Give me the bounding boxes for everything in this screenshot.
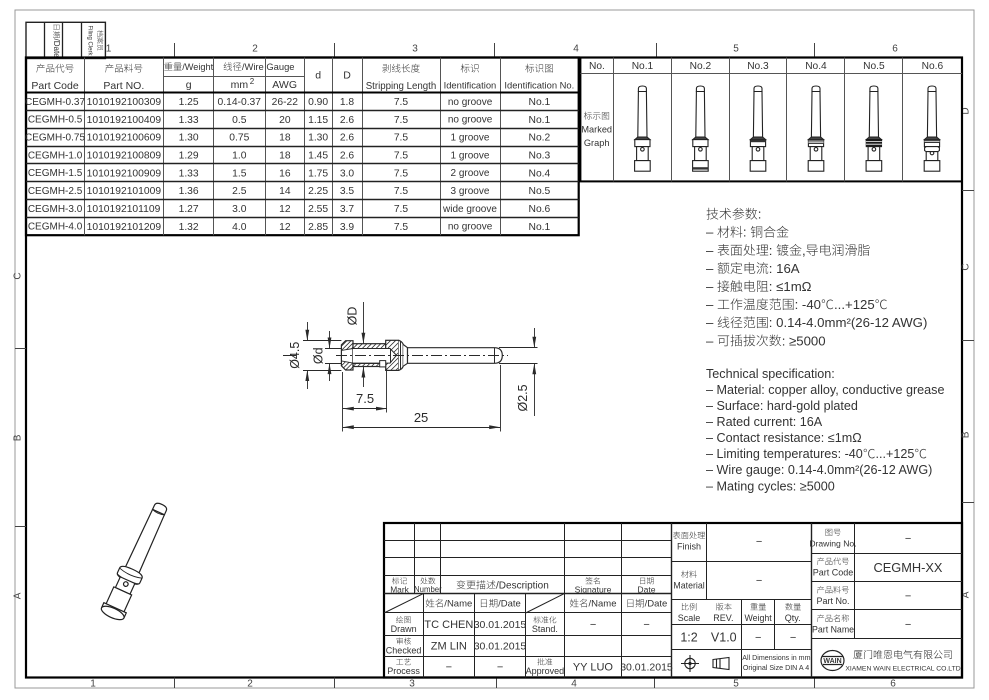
svg-text:/Date: /Date <box>498 599 521 610</box>
svg-text:CEGMH-XX: CEGMH-XX <box>874 560 943 575</box>
svg-text:3.5: 3.5 <box>340 186 355 197</box>
svg-text:/Weight: /Weight <box>182 62 213 72</box>
svg-text:/Description: /Description <box>496 581 549 592</box>
svg-text:4: 4 <box>571 679 577 690</box>
svg-text:No.3: No.3 <box>529 151 551 162</box>
svg-text:1.27: 1.27 <box>179 204 199 215</box>
svg-text:No.1: No.1 <box>529 115 551 126</box>
svg-text:3.0: 3.0 <box>232 204 247 215</box>
svg-text:No.1: No.1 <box>529 222 551 233</box>
svg-text:2: 2 <box>250 77 255 86</box>
svg-text:1.75: 1.75 <box>308 168 328 179</box>
svg-text:Ø4.5: Ø4.5 <box>288 342 302 369</box>
svg-text:2.6: 2.6 <box>340 133 355 144</box>
svg-text:7.5: 7.5 <box>394 133 409 144</box>
svg-text:no groove: no groove <box>448 222 493 233</box>
svg-text:18: 18 <box>279 133 291 144</box>
svg-text:–: – <box>706 225 714 240</box>
svg-text:7.5: 7.5 <box>394 151 409 162</box>
svg-text:1.5: 1.5 <box>232 168 247 179</box>
svg-text:V1.0: V1.0 <box>711 631 737 645</box>
svg-text:–: – <box>706 315 714 330</box>
svg-text:12: 12 <box>279 204 291 215</box>
svg-text:no groove: no groove <box>448 97 493 108</box>
svg-text:1.15: 1.15 <box>308 115 328 126</box>
svg-text:20: 20 <box>279 115 291 126</box>
svg-text:– Wire gauge: 0.14-4.0mm²(26-1: – Wire gauge: 0.14-4.0mm²(26-12 AWG) <box>706 463 932 477</box>
svg-text:1.33: 1.33 <box>179 115 199 126</box>
svg-text:–: – <box>706 333 714 348</box>
svg-text:3: 3 <box>409 679 415 690</box>
svg-text:TC CHEN: TC CHEN <box>424 619 473 631</box>
svg-text:Material: Material <box>673 581 704 591</box>
svg-text:No.2: No.2 <box>529 133 551 144</box>
svg-text:1.30: 1.30 <box>308 133 328 144</box>
svg-text:CEGMH-0.5: CEGMH-0.5 <box>28 115 83 126</box>
svg-text:Part Code: Part Code <box>813 568 854 578</box>
svg-text:No.2: No.2 <box>690 61 712 72</box>
svg-text:6: 6 <box>892 44 898 55</box>
svg-text:1.8: 1.8 <box>340 97 355 108</box>
svg-text:: ≤1mΩ: : ≤1mΩ <box>769 279 812 294</box>
svg-text:No.1: No.1 <box>632 61 654 72</box>
svg-text:7.5: 7.5 <box>394 97 409 108</box>
svg-text:– Rated current: 16A: – Rated current: 16A <box>706 415 823 429</box>
svg-text:7.5: 7.5 <box>394 168 409 179</box>
svg-text:Finish: Finish <box>677 542 701 552</box>
svg-text:CEGMH-0.75: CEGMH-0.75 <box>25 133 85 144</box>
svg-text:2.5: 2.5 <box>232 186 247 197</box>
svg-text:2: 2 <box>247 679 253 690</box>
svg-text:Filing Clerk: Filing Clerk <box>87 26 93 57</box>
svg-text:–: – <box>706 279 714 294</box>
svg-text:: 16A: : 16A <box>769 261 800 276</box>
svg-text:30.01.2015: 30.01.2015 <box>620 661 673 673</box>
svg-text:4.0: 4.0 <box>232 222 247 233</box>
svg-text:No.6: No.6 <box>529 204 551 215</box>
svg-text:Qty.: Qty. <box>785 613 801 623</box>
svg-text:−: − <box>905 619 911 631</box>
svg-text:– Mating cycles: ≥5000: – Mating cycles: ≥5000 <box>706 479 835 493</box>
svg-text:30.01.2015: 30.01.2015 <box>474 619 527 631</box>
svg-text:1010192101109: 1010192101109 <box>87 204 161 215</box>
svg-text:WAIN: WAIN <box>823 658 841 665</box>
svg-text:B: B <box>961 431 972 438</box>
svg-text:CEGMH-1.0: CEGMH-1.0 <box>28 150 83 161</box>
svg-text:1:2: 1:2 <box>680 631 697 645</box>
svg-text:1010192100809: 1010192100809 <box>87 151 162 162</box>
svg-text:7.5: 7.5 <box>356 391 374 406</box>
svg-text:1.32: 1.32 <box>179 222 199 233</box>
svg-text:No.6: No.6 <box>922 61 944 72</box>
svg-text:Process: Process <box>387 666 420 676</box>
svg-text:1.36: 1.36 <box>179 186 199 197</box>
svg-text:Marked: Marked <box>581 125 612 135</box>
svg-text:1 groove: 1 groove <box>451 150 490 161</box>
svg-text:3 groove: 3 groove <box>451 186 490 197</box>
svg-text:−: − <box>755 632 761 644</box>
svg-text:/Name: /Name <box>589 599 617 610</box>
svg-text:Number: Number <box>414 585 442 594</box>
svg-text:–: – <box>706 261 714 276</box>
svg-text:Mark: Mark <box>390 584 409 594</box>
svg-text:g: g <box>186 79 192 91</box>
svg-text:−: − <box>756 575 762 587</box>
svg-text:– Limiting temperatures: -40: – Limiting temperatures: -40 <box>706 447 863 461</box>
svg-text:YY LUO: YY LUO <box>573 662 614 674</box>
svg-text:/Name: /Name <box>444 599 472 610</box>
svg-text:3.9: 3.9 <box>340 222 355 233</box>
svg-text:1: 1 <box>106 44 112 55</box>
svg-text:XIAMEN WAIN ELECTRICAL CO.LTD: XIAMEN WAIN ELECTRICAL CO.LTD <box>845 665 960 672</box>
svg-text:Date: Date <box>637 585 655 595</box>
svg-text:0.14-0.37: 0.14-0.37 <box>218 97 262 108</box>
svg-text:1.30: 1.30 <box>179 133 199 144</box>
svg-text:−: − <box>756 536 762 548</box>
svg-text:1010192100909: 1010192100909 <box>87 168 162 179</box>
svg-text:A: A <box>13 592 24 599</box>
svg-text:,: , <box>802 243 806 258</box>
svg-text:All Dimensions in mm: All Dimensions in mm <box>742 654 810 662</box>
svg-text:–: – <box>706 243 714 258</box>
svg-text:1010192100309: 1010192100309 <box>87 97 162 108</box>
svg-text:Drawing No.: Drawing No. <box>809 539 856 549</box>
svg-text:No.4: No.4 <box>805 61 827 72</box>
svg-text:d: d <box>315 70 321 82</box>
svg-text:Part No.: Part No. <box>817 596 850 606</box>
svg-text:1.29: 1.29 <box>179 151 199 162</box>
svg-text:CEGMH-3.0: CEGMH-3.0 <box>28 204 83 215</box>
svg-text:4: 4 <box>573 44 579 55</box>
svg-text:mm: mm <box>231 79 249 91</box>
svg-text:−: − <box>905 533 911 545</box>
svg-text:18: 18 <box>279 151 291 162</box>
svg-text:1.25: 1.25 <box>179 97 199 108</box>
svg-text::: : <box>769 243 773 258</box>
svg-text:1010192101009: 1010192101009 <box>87 186 162 197</box>
svg-text:No.1: No.1 <box>529 97 551 108</box>
svg-text:2.55: 2.55 <box>308 204 328 215</box>
svg-text:– Contact resistance: ≤1mΩ: – Contact resistance: ≤1mΩ <box>706 431 862 445</box>
svg-text:C: C <box>13 272 24 279</box>
svg-text:: -40: : -40 <box>795 297 821 312</box>
svg-text:CEGMH-1.5: CEGMH-1.5 <box>28 168 83 179</box>
svg-text:No.4: No.4 <box>529 168 551 179</box>
svg-text:16: 16 <box>279 168 291 179</box>
svg-text:0.90: 0.90 <box>308 97 328 108</box>
svg-text:Scale: Scale <box>678 613 701 623</box>
svg-text:0.5: 0.5 <box>232 115 247 126</box>
svg-text:−: − <box>446 662 452 674</box>
svg-text:No.5: No.5 <box>529 186 551 197</box>
svg-text:Identification: Identification <box>444 80 497 91</box>
svg-text:1.45: 1.45 <box>308 151 328 162</box>
svg-text:Weight: Weight <box>745 613 773 623</box>
svg-text:5: 5 <box>733 679 739 690</box>
svg-text:1010192101209: 1010192101209 <box>87 222 162 233</box>
svg-text:/Date: /Date <box>52 39 61 59</box>
svg-text:D: D <box>343 70 351 82</box>
svg-text:REV.: REV. <box>713 613 733 623</box>
svg-text:wide groove: wide groove <box>442 204 497 215</box>
svg-text:ZM LIN: ZM LIN <box>431 641 467 653</box>
svg-text:– Material: copper alloy, cond: – Material: copper alloy, conductive gre… <box>706 383 944 397</box>
svg-text:−: − <box>643 619 649 631</box>
svg-text:Signature: Signature <box>575 585 612 595</box>
svg-text:7.5: 7.5 <box>394 204 409 215</box>
svg-text:...+125: ...+125 <box>876 447 915 461</box>
svg-text:CEGMH-0.37: CEGMH-0.37 <box>25 97 85 108</box>
svg-text:1.33: 1.33 <box>179 168 199 179</box>
svg-text:−: − <box>590 619 596 631</box>
svg-text:12: 12 <box>279 222 291 233</box>
svg-text:1 groove: 1 groove <box>451 133 490 144</box>
svg-text:C: C <box>961 263 972 270</box>
svg-text:2.6: 2.6 <box>340 115 355 126</box>
svg-text:Part Code: Part Code <box>31 80 78 92</box>
svg-text:: 0.14-4.0mm²(26-12 AWG): : 0.14-4.0mm²(26-12 AWG) <box>769 315 928 330</box>
svg-text:No.5: No.5 <box>863 61 885 72</box>
svg-text:Original Size DIN A 4: Original Size DIN A 4 <box>743 664 809 672</box>
svg-text:5: 5 <box>733 44 739 55</box>
svg-text:Checked: Checked <box>386 645 422 655</box>
svg-text:ØD: ØD <box>346 307 360 326</box>
svg-text:1.0: 1.0 <box>232 151 247 162</box>
svg-text:3: 3 <box>412 44 418 55</box>
svg-text:Approved: Approved <box>526 666 565 676</box>
svg-text:1010192100609: 1010192100609 <box>87 133 162 144</box>
svg-text:1010192100409: 1010192100409 <box>87 115 162 126</box>
svg-text:B: B <box>13 434 24 441</box>
svg-text:3.7: 3.7 <box>340 204 355 215</box>
svg-text:−: − <box>497 662 503 674</box>
svg-text:6: 6 <box>890 679 896 690</box>
svg-text:2.6: 2.6 <box>340 151 355 162</box>
svg-text:Identification No.: Identification No. <box>504 80 574 91</box>
svg-text:Stand.: Stand. <box>532 624 558 634</box>
svg-text:2.25: 2.25 <box>308 186 328 197</box>
svg-text:Ød: Ød <box>312 347 326 364</box>
svg-text:/Wire Gauge: /Wire Gauge <box>242 61 295 72</box>
svg-text::: : <box>743 225 747 240</box>
svg-text:1: 1 <box>90 679 96 690</box>
svg-text:Stripping Length: Stripping Length <box>366 81 437 92</box>
svg-text:Technical specification:: Technical specification: <box>706 367 835 381</box>
svg-text:2 groove: 2 groove <box>451 168 490 179</box>
svg-text:7.5: 7.5 <box>394 186 409 197</box>
svg-text:AWG: AWG <box>272 79 297 91</box>
svg-text:...+125: ...+125 <box>834 297 875 312</box>
svg-text:CEGMH-4.0: CEGMH-4.0 <box>28 222 83 233</box>
svg-text:−: − <box>790 632 796 644</box>
svg-text:No.: No. <box>589 61 605 72</box>
svg-text::: : <box>758 207 762 222</box>
svg-text:–: – <box>706 297 714 312</box>
svg-text:– Surface: hard-gold plated: – Surface: hard-gold plated <box>706 399 858 413</box>
svg-text:Graph: Graph <box>584 138 610 148</box>
svg-text:Part NO.: Part NO. <box>103 80 144 92</box>
svg-text:−: − <box>905 590 911 602</box>
svg-text:: ≥5000: : ≥5000 <box>782 333 826 348</box>
svg-text:26-22: 26-22 <box>272 97 299 108</box>
svg-text:25: 25 <box>414 410 428 425</box>
svg-text:no groove: no groove <box>448 115 493 126</box>
svg-text:Part Name: Part Name <box>812 625 854 635</box>
svg-text:14: 14 <box>279 186 291 197</box>
svg-text:Drawn: Drawn <box>391 624 417 634</box>
svg-text:Ø2.5: Ø2.5 <box>516 384 530 411</box>
svg-text:/Date: /Date <box>645 599 668 610</box>
svg-text:3.0: 3.0 <box>340 168 355 179</box>
svg-text:2: 2 <box>252 44 258 55</box>
svg-text:7.5: 7.5 <box>394 222 409 233</box>
svg-text:CEGMH-2.5: CEGMH-2.5 <box>28 186 83 197</box>
svg-text:No.3: No.3 <box>747 61 769 72</box>
svg-text:30.01.2015: 30.01.2015 <box>474 640 527 652</box>
svg-text:2.85: 2.85 <box>308 222 328 233</box>
svg-text:7.5: 7.5 <box>394 115 409 126</box>
svg-text:0.75: 0.75 <box>229 133 249 144</box>
